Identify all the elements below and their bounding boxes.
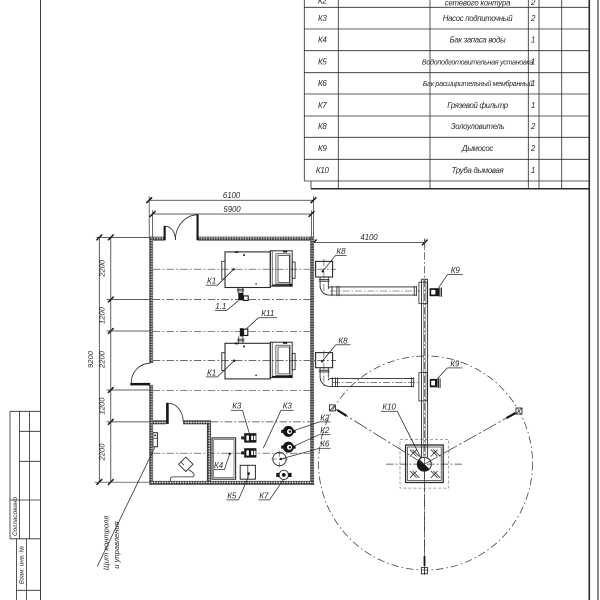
svg-text:Щит контроля: Щит контроля <box>101 516 110 571</box>
svg-text:Труба дымовая: Труба дымовая <box>452 166 505 175</box>
svg-text:К7: К7 <box>318 101 327 110</box>
svg-text:6100: 6100 <box>223 191 241 200</box>
svg-text:К9: К9 <box>318 144 327 153</box>
svg-text:Грязевой фильтр: Грязевой фильтр <box>447 101 508 110</box>
svg-text:К6: К6 <box>318 79 327 88</box>
svg-text:К10: К10 <box>382 403 396 412</box>
svg-text:1: 1 <box>531 36 535 45</box>
svg-text:1200: 1200 <box>98 397 107 415</box>
svg-text:5900: 5900 <box>223 205 241 214</box>
svg-text:Насос подпиточный: Насос подпиточный <box>443 14 513 23</box>
svg-text:К9: К9 <box>450 359 460 368</box>
svg-text:К5: К5 <box>318 57 327 66</box>
svg-text:К5: К5 <box>227 491 237 500</box>
svg-text:К7: К7 <box>259 491 269 500</box>
svg-text:1.1: 1.1 <box>215 302 226 311</box>
svg-text:К2: К2 <box>320 426 330 435</box>
svg-text:К6: К6 <box>320 440 330 449</box>
svg-text:1200: 1200 <box>98 306 107 324</box>
svg-text:4100: 4100 <box>360 233 378 242</box>
svg-text:1: 1 <box>531 79 535 88</box>
svg-text:Согласовано: Согласовано <box>12 497 19 536</box>
svg-text:К3: К3 <box>232 402 242 411</box>
svg-text:и управления: и управления <box>112 521 121 568</box>
svg-text:К9: К9 <box>451 266 461 275</box>
svg-text:9200: 9200 <box>86 350 95 368</box>
svg-text:К1: К1 <box>207 368 216 377</box>
svg-text:2200: 2200 <box>98 259 107 278</box>
svg-text:2: 2 <box>530 0 536 7</box>
svg-text:Бак запаса воды: Бак запаса воды <box>450 36 506 45</box>
svg-text:Бак расширительный мембранный: Бак расширительный мембранный <box>423 79 533 88</box>
svg-text:К3: К3 <box>283 402 293 411</box>
svg-text:Золоуловитель: Золоуловитель <box>451 122 505 131</box>
svg-text:2200: 2200 <box>98 443 107 462</box>
svg-text:1: 1 <box>531 57 535 66</box>
svg-text:К2: К2 <box>318 0 327 5</box>
svg-text:К3: К3 <box>318 14 327 23</box>
svg-text:К2: К2 <box>320 413 330 422</box>
svg-text:К1: К1 <box>207 277 216 286</box>
svg-text:К11: К11 <box>261 309 274 318</box>
svg-text:2200: 2200 <box>98 350 107 369</box>
svg-text:2: 2 <box>530 14 536 23</box>
svg-text:Дымосос: Дымосос <box>461 144 493 153</box>
svg-text:К4: К4 <box>318 36 327 45</box>
svg-text:К8: К8 <box>336 247 346 256</box>
svg-text:1: 1 <box>531 101 535 110</box>
svg-text:К4: К4 <box>214 461 224 470</box>
svg-text:2: 2 <box>530 144 536 153</box>
svg-text:К8: К8 <box>318 122 327 131</box>
svg-text:Взам. инв. №: Взам. инв. № <box>19 546 26 585</box>
svg-text:К10: К10 <box>316 166 330 175</box>
svg-text:сетевого контура: сетевого контура <box>445 0 511 7</box>
svg-text:2: 2 <box>530 122 536 131</box>
svg-text:К8: К8 <box>338 336 348 345</box>
svg-text:Водоподготовительная установка: Водоподготовительная установка <box>422 57 533 66</box>
svg-text:1: 1 <box>531 166 535 175</box>
